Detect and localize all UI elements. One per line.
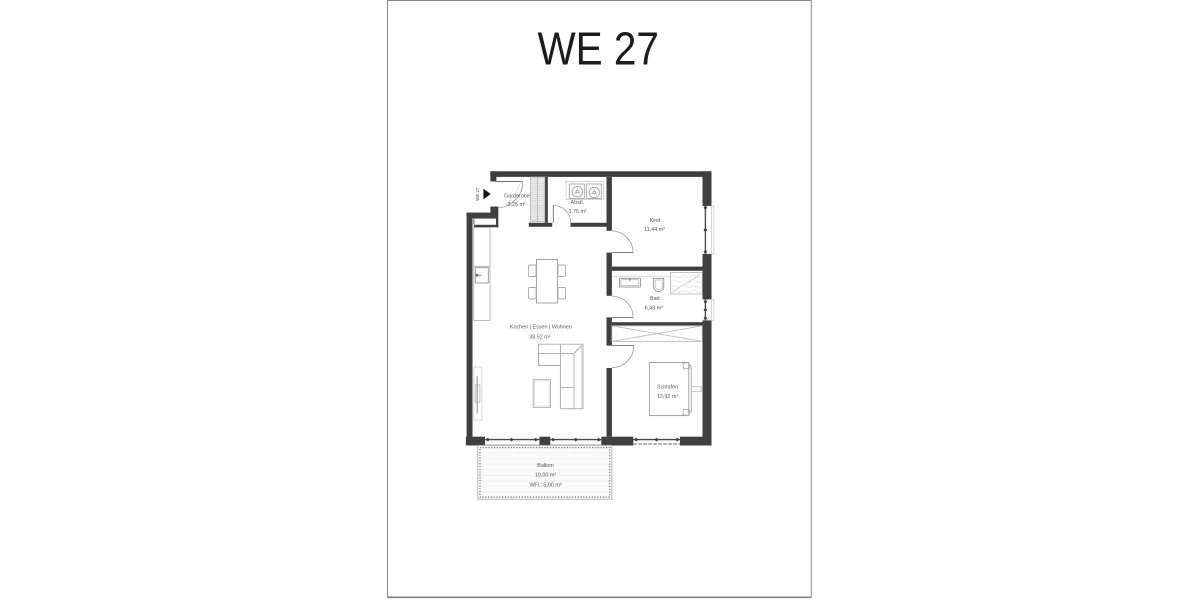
svg-text:Kochen | Essen | Wohnen: Kochen | Essen | Wohnen	[510, 325, 572, 331]
svg-text:6,48 m²: 6,48 m²	[645, 305, 663, 311]
svg-text:WFl.: 5,00 m²: WFl.: 5,00 m²	[529, 482, 562, 488]
svg-text:Abstl.: Abstl.	[571, 200, 584, 206]
svg-text:Schlafen: Schlafen	[657, 385, 678, 391]
svg-text:WE 27: WE 27	[537, 22, 659, 74]
svg-text:3,25 m²: 3,25 m²	[507, 202, 525, 208]
svg-text:13,92 m²: 13,92 m²	[657, 394, 678, 400]
svg-text:11,44 m²: 11,44 m²	[644, 227, 665, 233]
svg-text:Kind: Kind	[650, 218, 661, 224]
svg-text:10,00 m²: 10,00 m²	[535, 473, 556, 479]
svg-text:WE 27: WE 27	[475, 187, 480, 201]
svg-text:Garderobe: Garderobe	[504, 194, 530, 200]
svg-text:Bad: Bad	[650, 296, 660, 302]
svg-text:38,52 m²: 38,52 m²	[529, 334, 550, 340]
svg-text:3,76 m²: 3,76 m²	[569, 209, 587, 215]
svg-text:Balkon: Balkon	[537, 463, 553, 469]
